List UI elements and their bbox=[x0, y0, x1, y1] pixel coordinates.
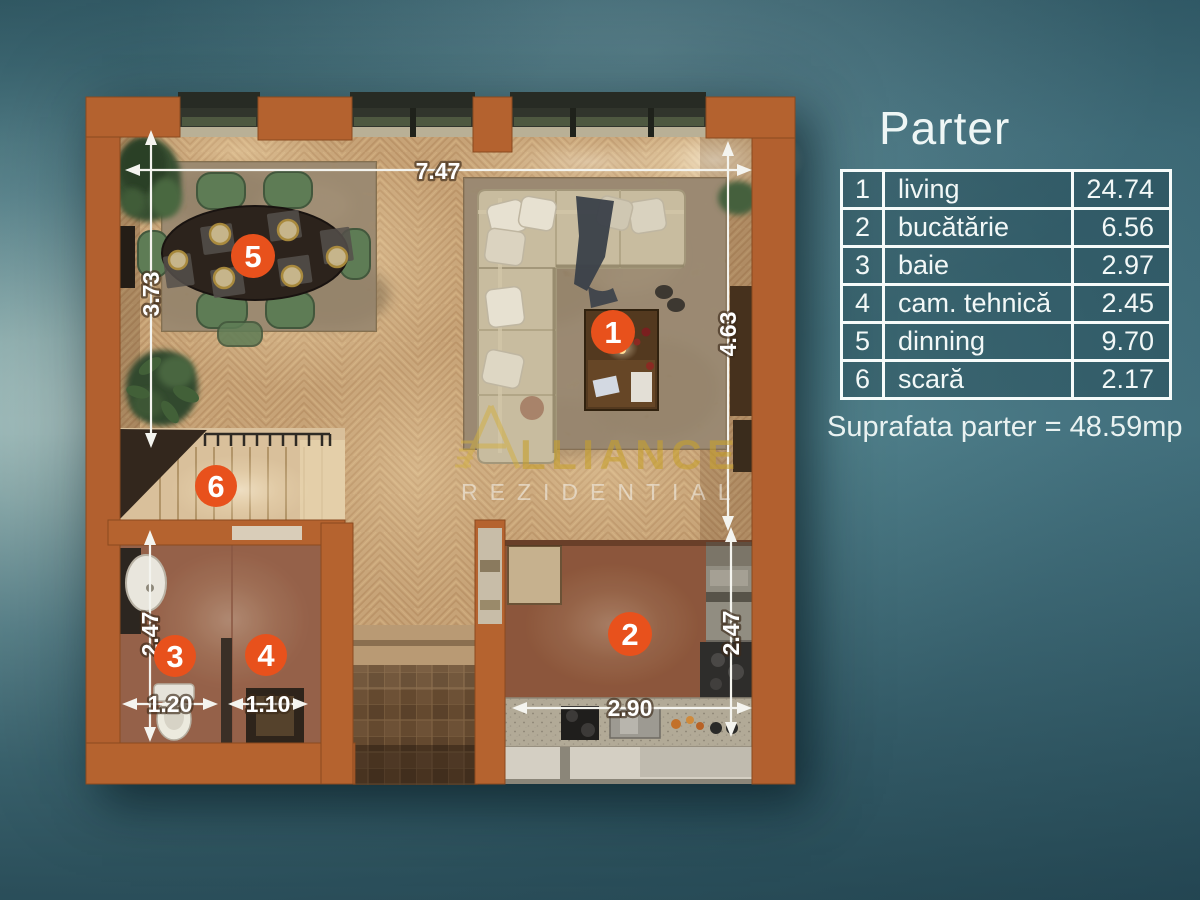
svg-text:1.20: 1.20 bbox=[148, 691, 193, 717]
svg-text:2: 2 bbox=[621, 617, 638, 652]
svg-text:6: 6 bbox=[207, 469, 224, 504]
svg-text:1: 1 bbox=[604, 315, 621, 350]
svg-text:4: 4 bbox=[257, 638, 275, 673]
svg-text:REZIDENTIAL: REZIDENTIAL bbox=[461, 479, 743, 505]
svg-text:2.90: 2.90 bbox=[608, 695, 653, 721]
svg-text:3: 3 bbox=[166, 639, 183, 674]
svg-text:7.47: 7.47 bbox=[416, 158, 461, 184]
svg-text:4.63: 4.63 bbox=[715, 312, 741, 357]
svg-text:LLIANCE: LLIANCE bbox=[520, 431, 741, 478]
svg-text:1.10: 1.10 bbox=[246, 691, 291, 717]
svg-text:5: 5 bbox=[244, 239, 261, 274]
svg-text:3.73: 3.73 bbox=[138, 272, 164, 317]
svg-text:2.47: 2.47 bbox=[718, 611, 744, 656]
